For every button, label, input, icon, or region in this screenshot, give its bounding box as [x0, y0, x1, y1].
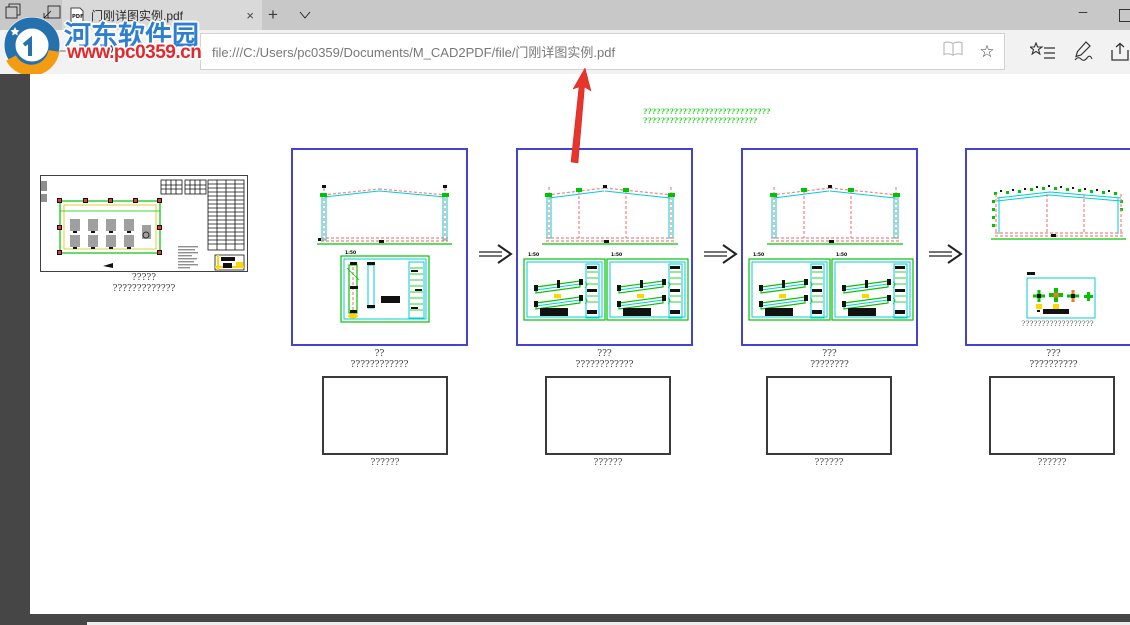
- stage1-caption: ?? ????????????: [291, 349, 468, 371]
- cad-stage1-panel: 1:50: [291, 148, 468, 346]
- cad-stage4-drawing: [967, 150, 1130, 344]
- cad-stage1-drawing: 1:50: [293, 150, 466, 344]
- placeholder-caption: ??????: [322, 458, 448, 468]
- svg-text:1:50: 1:50: [753, 252, 764, 258]
- placeholder-box: [989, 376, 1115, 455]
- plan-caption: ????? ?????????????: [40, 273, 248, 295]
- svg-text:1:50: 1:50: [836, 252, 847, 258]
- stage4-caption: ??? ??????????: [965, 349, 1130, 371]
- step-arrow: [928, 243, 964, 265]
- placeholder-box: [766, 376, 892, 455]
- step-arrow: [703, 243, 739, 265]
- minimize-button[interactable]: ─: [1072, 5, 1094, 25]
- cad-stage2-drawing: 1:50 1:50: [518, 150, 691, 344]
- pdf-header-line1: ?????????????????????????????: [643, 107, 770, 116]
- cad-stage2-panel: 1:50 1:50: [516, 148, 693, 346]
- reading-view-icon[interactable]: [936, 41, 970, 62]
- pdf-header-line2: ??????????????????????????: [643, 116, 757, 125]
- cad-stage4-panel: [965, 148, 1130, 346]
- favorite-star-icon[interactable]: ☆: [970, 42, 1004, 62]
- tab-close-icon[interactable]: ×: [246, 8, 254, 23]
- watermark-site-url: www.pc0359.cn: [67, 42, 201, 64]
- hub-icon[interactable]: [1030, 42, 1056, 62]
- placeholder-caption: ??????: [989, 458, 1115, 468]
- annotation-arrow-icon: [558, 58, 602, 170]
- cad-plan-sheet: [40, 175, 248, 272]
- stage3-caption: ??? ????????: [741, 349, 918, 371]
- placeholder-caption: ??????: [545, 458, 671, 468]
- share-icon[interactable]: [1110, 42, 1130, 62]
- placeholder-box: [545, 376, 671, 455]
- address-bar[interactable]: file:///C:/Users/pc0359/Documents/M_CAD2…: [200, 33, 1005, 70]
- stage2-caption: ??? ????????????: [516, 349, 693, 371]
- svg-text:1:50: 1:50: [528, 252, 539, 258]
- cad-stage3-panel: 1:50 1:50: [741, 148, 918, 346]
- step-arrow: [478, 243, 514, 265]
- cad-stage3-drawing: 1:50 1:50: [743, 150, 916, 344]
- new-tab-button[interactable]: +: [268, 6, 278, 23]
- placeholder-box: [322, 376, 448, 455]
- svg-text:1:50: 1:50: [345, 250, 356, 256]
- maximize-button[interactable]: [1119, 9, 1130, 22]
- svg-text:1:50: 1:50: [611, 252, 622, 258]
- placeholder-caption: ??????: [766, 458, 892, 468]
- web-note-pen-icon[interactable]: [1071, 40, 1095, 64]
- watermark-logo-icon: [3, 16, 63, 74]
- tab-list-chevron-icon[interactable]: [298, 10, 312, 20]
- stage4-note: ??????????????????: [990, 319, 1125, 328]
